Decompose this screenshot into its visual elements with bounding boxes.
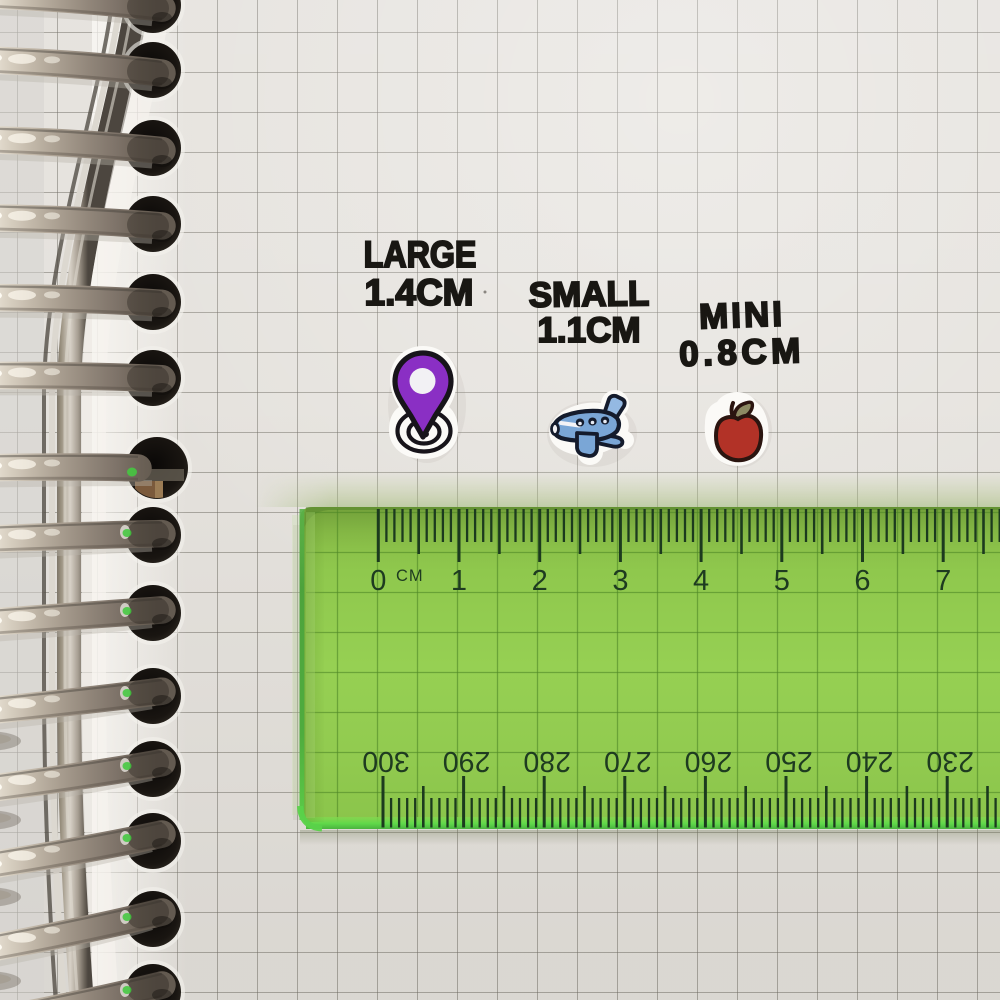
- svg-text:CM: CM: [396, 567, 424, 585]
- svg-text:280: 280: [523, 745, 571, 777]
- svg-text:250: 250: [765, 745, 813, 777]
- svg-text:3: 3: [612, 565, 628, 597]
- svg-text:260: 260: [685, 745, 733, 777]
- svg-text:300: 300: [362, 745, 410, 777]
- svg-text:240: 240: [846, 745, 894, 777]
- svg-text:2: 2: [532, 565, 548, 597]
- svg-text:1: 1: [451, 565, 467, 597]
- svg-text:6: 6: [854, 565, 870, 597]
- svg-text:0: 0: [370, 565, 386, 597]
- svg-text:4: 4: [693, 565, 709, 597]
- svg-text:5: 5: [774, 565, 790, 597]
- svg-text:7: 7: [935, 565, 951, 597]
- svg-text:270: 270: [604, 745, 652, 777]
- svg-text:230: 230: [926, 745, 974, 777]
- svg-text:290: 290: [443, 745, 491, 777]
